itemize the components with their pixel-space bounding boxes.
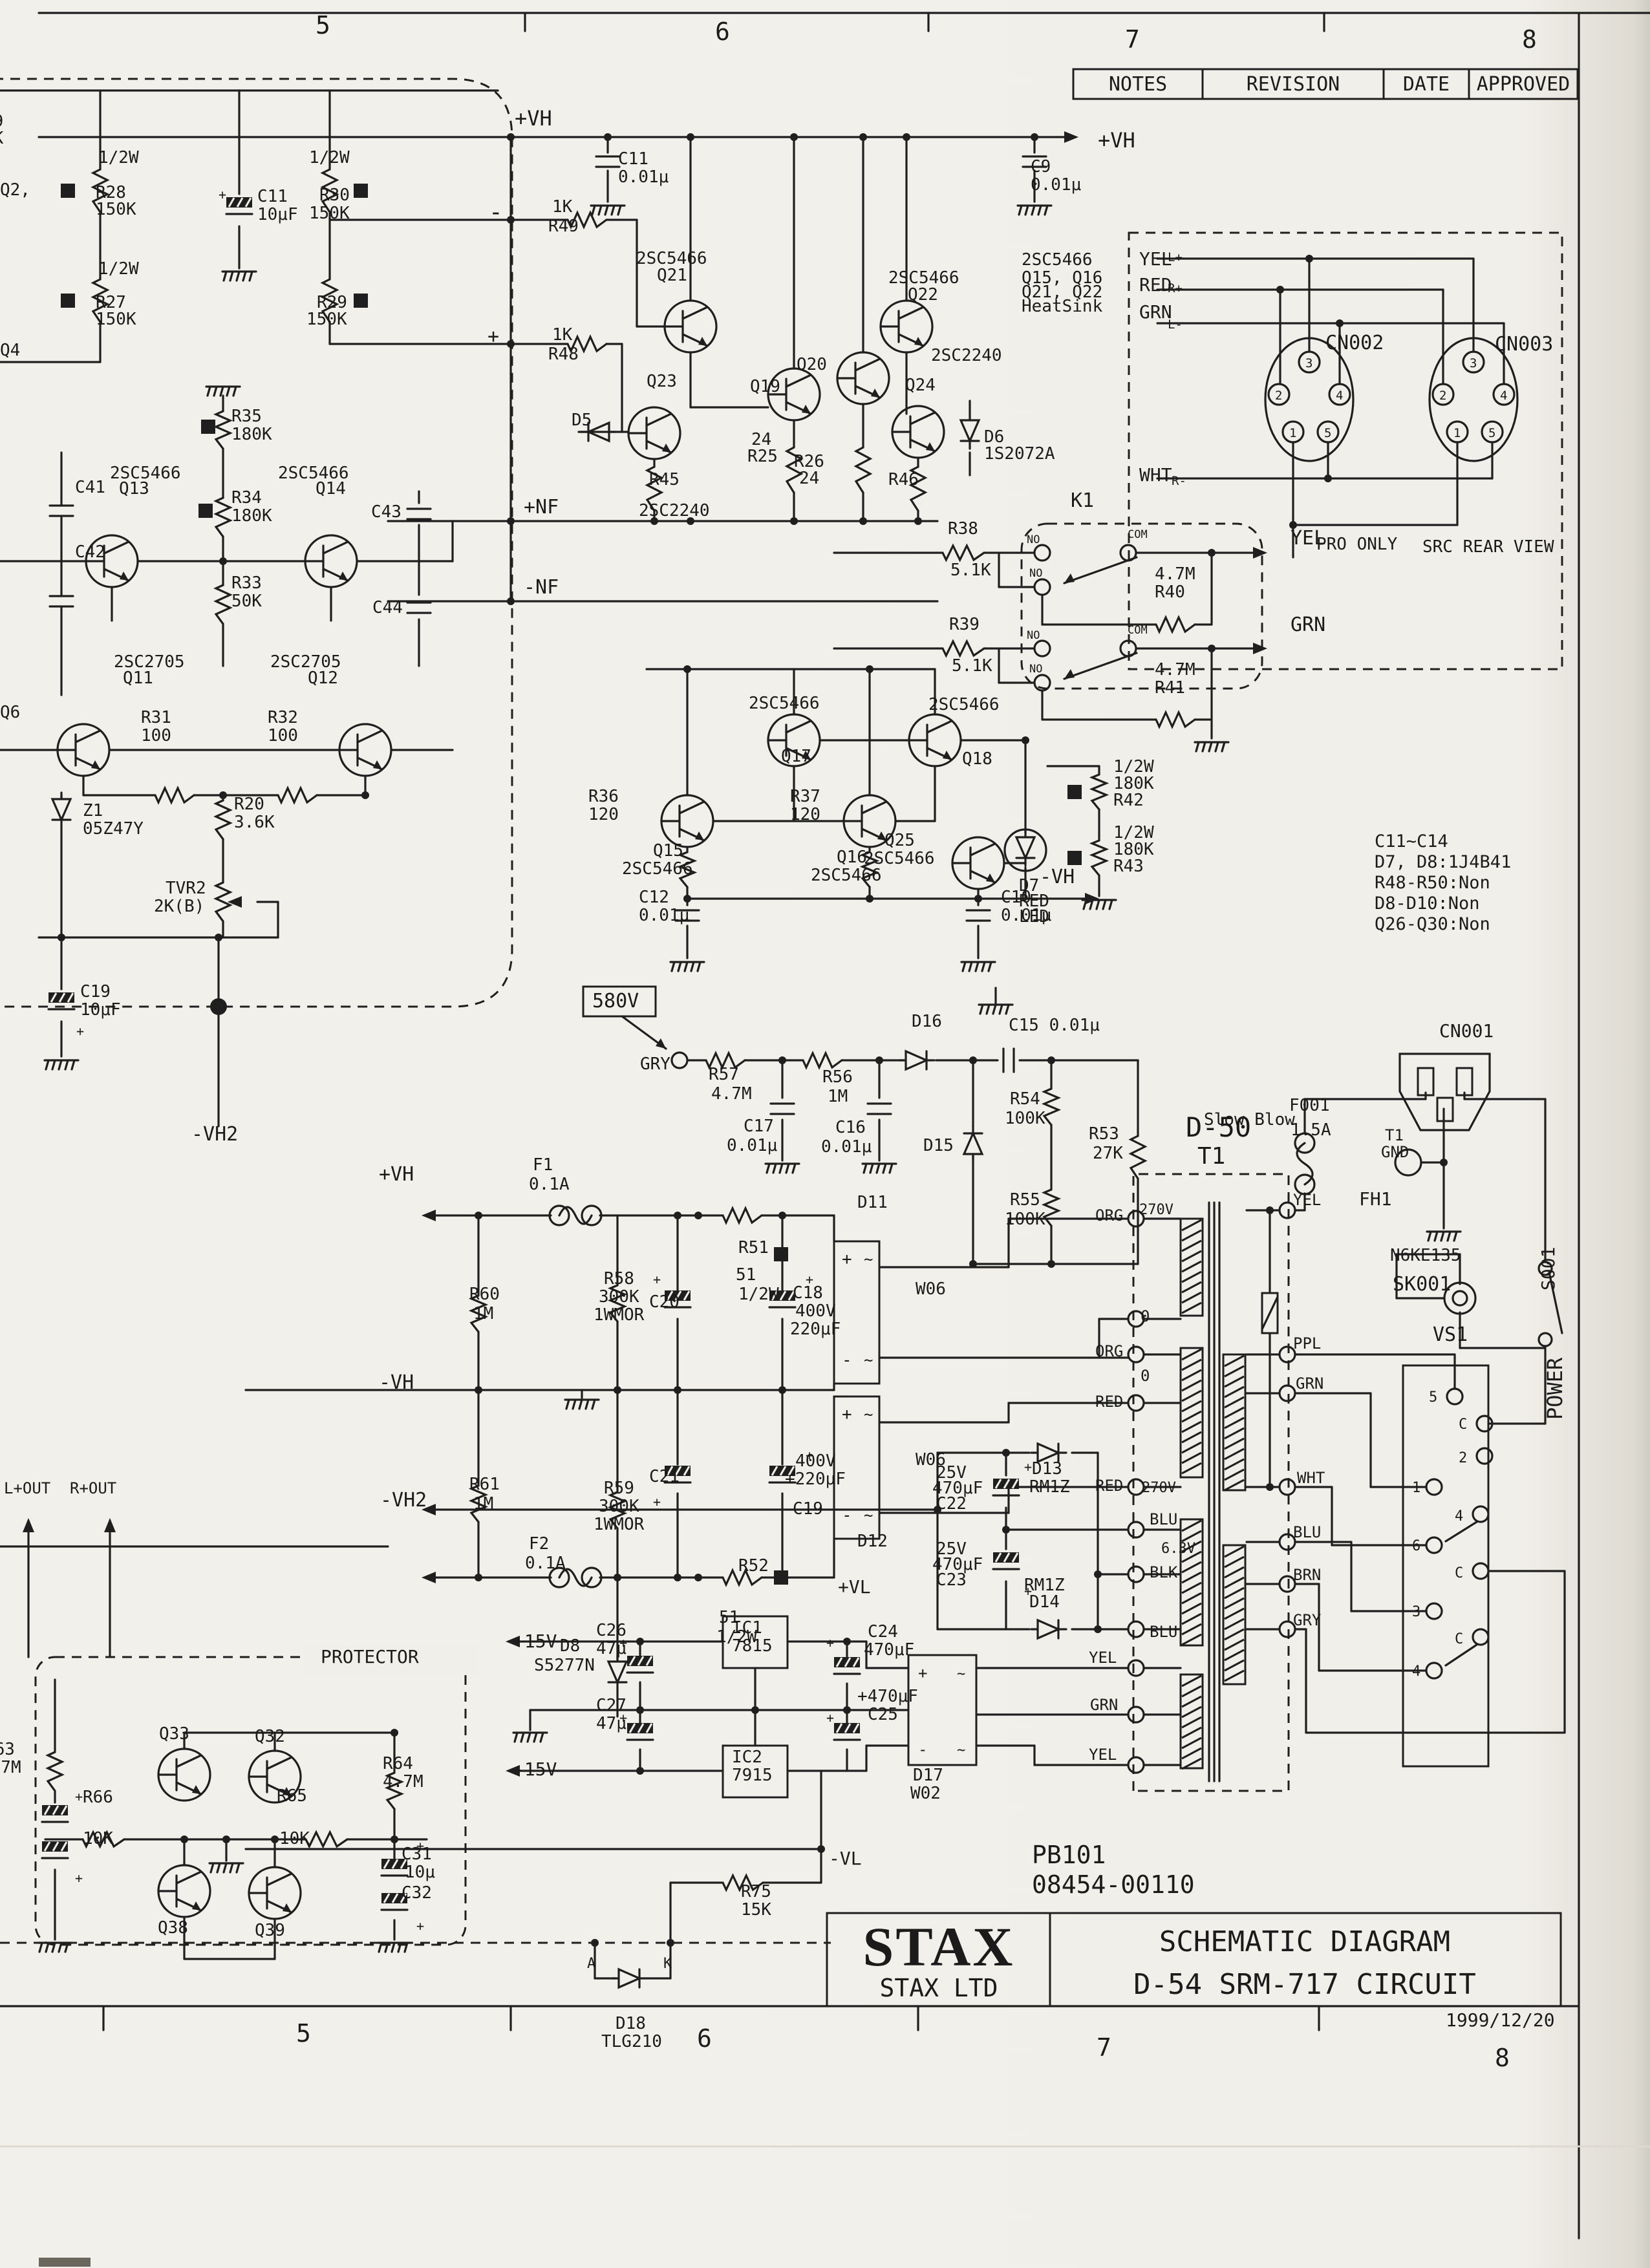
schematic-label: 7 bbox=[1097, 2033, 1111, 2062]
schematic-label: 100 bbox=[268, 726, 298, 745]
schematic-label: ORG bbox=[1095, 1206, 1123, 1225]
schematic-label: 2 bbox=[1439, 389, 1446, 403]
schematic-label: D8 bbox=[560, 1636, 580, 1656]
schematic-label: Q18 bbox=[962, 749, 992, 769]
schematic-label: D16 bbox=[912, 1012, 942, 1031]
schematic-label: NO bbox=[1027, 533, 1040, 546]
schematic-label: +15V bbox=[513, 1631, 557, 1652]
schematic-label: R66 bbox=[83, 1788, 113, 1807]
schematic-label: -NF bbox=[524, 576, 559, 599]
schematic-label: IC1 bbox=[732, 1618, 762, 1638]
schematic-label: 0.1A bbox=[529, 1175, 570, 1194]
schematic-label: 580V bbox=[592, 990, 639, 1012]
schematic-label: Q38 bbox=[158, 1918, 188, 1938]
schematic-label: Q25 bbox=[884, 831, 915, 850]
schematic-label: C41 bbox=[75, 478, 105, 497]
schematic-label: Q21 bbox=[657, 266, 687, 285]
schematic-label: + bbox=[1024, 1583, 1032, 1599]
schematic-label: 2SC5466 bbox=[811, 866, 882, 885]
schematic-label: C44 bbox=[372, 598, 403, 617]
schematic-label: 2SC5466 bbox=[864, 849, 935, 868]
schematic-label: CN002 bbox=[1325, 332, 1384, 354]
schematic-label: F1 bbox=[533, 1155, 553, 1175]
schematic-label: CN001 bbox=[1439, 1020, 1494, 1042]
schematic-label: + bbox=[826, 1710, 834, 1726]
schematic-label: 1WMOR bbox=[594, 1305, 645, 1325]
schematic-label: 4.7M bbox=[383, 1772, 423, 1792]
schematic-label: 0.01μ bbox=[727, 1136, 777, 1155]
schematic-label: 4 bbox=[1455, 1508, 1463, 1524]
schematic-label: 100K bbox=[1005, 1109, 1045, 1128]
schematic-label: C bbox=[1459, 1417, 1467, 1433]
schematic-label: C19 bbox=[80, 982, 111, 1001]
schematic-label: R32 bbox=[268, 708, 298, 727]
schematic-label: PRO ONLY bbox=[1316, 535, 1398, 554]
schematic-label: Q39 bbox=[255, 1921, 285, 1940]
schematic-label: 3 bbox=[1305, 356, 1312, 370]
schematic-label: R35 bbox=[231, 407, 262, 426]
schematic-label: R60 bbox=[469, 1285, 500, 1304]
schematic-label: 1M bbox=[828, 1087, 848, 1106]
schematic-label: 15K bbox=[741, 1900, 771, 1920]
schematic-label: YEL bbox=[1293, 1191, 1321, 1209]
schematic-label: R40 bbox=[1155, 583, 1185, 602]
schematic-label: A bbox=[587, 1956, 595, 1972]
schematic-label: + bbox=[487, 325, 499, 348]
schematic-label: -VH2 bbox=[380, 1489, 427, 1512]
schematic-label: C bbox=[1455, 1565, 1463, 1581]
schematic-label: 0 bbox=[1141, 1367, 1150, 1385]
schematic-label: 270V bbox=[1142, 1480, 1176, 1496]
schematic-label: 1 bbox=[1412, 1480, 1420, 1496]
schematic-label: R75 bbox=[741, 1882, 771, 1901]
parts-note: Q26-Q30:Non bbox=[1375, 914, 1490, 934]
schematic-label: R65 bbox=[277, 1786, 307, 1806]
schematic-label: -VH2 bbox=[191, 1123, 238, 1146]
schematic-label: ~ bbox=[957, 1666, 965, 1682]
schematic-label: R38 bbox=[948, 519, 978, 539]
schematic-label: HeatSink bbox=[1022, 297, 1103, 316]
schematic-label: K bbox=[663, 1956, 672, 1972]
pcb-id: PB101 bbox=[1032, 1841, 1106, 1869]
schematic-label: + bbox=[75, 1870, 83, 1886]
schematic-label: 51 bbox=[736, 1265, 756, 1285]
schematic-label: - bbox=[918, 1740, 927, 1759]
schematic-label: K1 bbox=[1071, 489, 1094, 512]
schematic-label: C24 bbox=[868, 1622, 898, 1642]
schematic-label: S5277N bbox=[534, 1656, 595, 1675]
schematic-label: +VL bbox=[838, 1576, 871, 1598]
schematic-label: GRN bbox=[1139, 301, 1172, 323]
schematic-label: 1M bbox=[473, 1494, 493, 1514]
schematic-label: Q16 bbox=[837, 848, 867, 867]
schematic-label: BLU bbox=[1150, 1510, 1177, 1528]
schematic-label: 27K bbox=[1093, 1144, 1123, 1163]
schematic-label: 300K bbox=[599, 1287, 639, 1307]
parts-note: D7, D8:1J4B41 bbox=[1375, 852, 1511, 872]
schematic-label: 2K(B) bbox=[154, 897, 204, 916]
schematic-label: 0.01μ bbox=[1001, 906, 1051, 925]
schematic-label: ~ bbox=[864, 1406, 873, 1424]
schematic-label: R30 bbox=[319, 186, 350, 205]
schematic-label: 2SC5466 bbox=[1022, 250, 1093, 270]
schematic-label: R48 bbox=[548, 345, 579, 364]
schematic-label: 5 bbox=[1324, 426, 1331, 440]
schematic-label: R57 bbox=[709, 1065, 739, 1084]
schematic-label: WHT bbox=[1139, 464, 1172, 486]
schematic-label: 400V bbox=[795, 1301, 836, 1321]
schematic-label: 180K bbox=[231, 425, 272, 444]
schematic-label: PPL bbox=[1293, 1334, 1321, 1353]
wires bbox=[0, 91, 1565, 1978]
schematic-label: 6 bbox=[1412, 1538, 1420, 1554]
schematic-label: + bbox=[619, 1635, 627, 1651]
schematic-label: C11 bbox=[257, 187, 288, 206]
schematic-label: 150K bbox=[309, 204, 350, 223]
schematic-label: 400V bbox=[795, 1451, 836, 1471]
schematic-label: +NF bbox=[524, 496, 559, 519]
schematic-label: + bbox=[842, 1250, 852, 1269]
schematic-label: 1 bbox=[1289, 426, 1296, 440]
schematic-label: 1K bbox=[552, 197, 573, 217]
schematic-label: 2SC5466 bbox=[928, 695, 1000, 714]
schematic-label: D17 bbox=[913, 1766, 943, 1785]
schematic-label: +VH bbox=[1098, 128, 1135, 153]
schematic-label: R43 bbox=[1113, 857, 1144, 876]
schematic-label: 4.7M bbox=[0, 1758, 21, 1777]
schematic-label: R42 bbox=[1113, 791, 1144, 810]
schematic-label: T1 bbox=[1385, 1126, 1404, 1144]
schematic-label: + bbox=[806, 1272, 813, 1287]
schematic-label: 4.7M bbox=[1155, 660, 1195, 679]
schematic-label: D12 bbox=[857, 1532, 888, 1551]
schematic-label: CN003 bbox=[1495, 333, 1553, 356]
schematic-label: 7 bbox=[1125, 25, 1140, 54]
schematic-label: 0 bbox=[1141, 1307, 1150, 1325]
schematic-label: GRN bbox=[1090, 1696, 1118, 1714]
schematic-label: D13 bbox=[1032, 1459, 1062, 1479]
schematic-label: Q14 bbox=[316, 479, 346, 498]
schematic-label: 5 bbox=[316, 11, 330, 39]
schematic-label: Q6 bbox=[0, 703, 20, 722]
schematic-label: R45 bbox=[649, 470, 680, 489]
schematic-label: W06 bbox=[916, 1279, 946, 1299]
schematic-label: 100 bbox=[141, 726, 171, 745]
schematic-label: 300K bbox=[599, 1497, 639, 1516]
schematic-label: Q23 bbox=[647, 372, 677, 391]
schematic-label: YEL bbox=[1139, 248, 1172, 270]
schematic-label: 180K bbox=[231, 506, 272, 526]
schematic-label: 2 bbox=[1275, 389, 1282, 403]
schematic-label: NO bbox=[1029, 567, 1042, 580]
schematic-label: + bbox=[826, 1635, 834, 1651]
schematic-label: R58 bbox=[604, 1269, 634, 1289]
schematic-label: C9 bbox=[1031, 157, 1051, 177]
schematic-label: + bbox=[219, 187, 226, 202]
schematic-label: BLU bbox=[1150, 1623, 1177, 1641]
component-labels: 567856781999/12/20R91KQ2,Q4Q61/2WR28150K… bbox=[0, 11, 1567, 2072]
schematic-label: 5.1K bbox=[952, 656, 992, 676]
rev-col-approved: APPROVED bbox=[1477, 73, 1570, 96]
schematic-label: + bbox=[653, 1494, 661, 1510]
schematic-label: R36 bbox=[588, 787, 619, 806]
schematic-label: C42 bbox=[75, 542, 105, 562]
schematic-label: R25 bbox=[747, 447, 778, 466]
schematic-label: S001 bbox=[1537, 1247, 1559, 1290]
schematic-label: VS1 bbox=[1433, 1323, 1468, 1346]
schematic-label: 1/2W bbox=[309, 148, 350, 167]
schematic-label: 2SC5466 bbox=[749, 694, 820, 713]
schematic-label: SRC REAR VIEW bbox=[1422, 537, 1554, 557]
schematic-label: 50K bbox=[231, 592, 262, 611]
schematic-label: R37 bbox=[790, 787, 820, 806]
schematic-label: + bbox=[1024, 1459, 1032, 1475]
schematic-label: ~ bbox=[864, 1506, 873, 1524]
schematic-label: IC2 bbox=[732, 1748, 762, 1767]
schematic-label: + bbox=[75, 1789, 83, 1804]
schematic-label: 10K bbox=[279, 1829, 310, 1848]
schematic-label: 120 bbox=[588, 805, 619, 824]
schematic-label: + bbox=[76, 1023, 84, 1039]
schematic-label: Q11 bbox=[123, 669, 153, 688]
schematic-label: F001 bbox=[1289, 1096, 1330, 1115]
schematic-label: BLK bbox=[1150, 1563, 1178, 1581]
schematic-label: 0.01μ bbox=[1031, 175, 1081, 195]
schematic-label: Q13 bbox=[119, 479, 149, 498]
schematic-label: 10K bbox=[83, 1829, 113, 1848]
schematic-label: R53 bbox=[1089, 1124, 1119, 1144]
schematic-label: GRN bbox=[1296, 1375, 1323, 1393]
schematic-label: T1 bbox=[1197, 1143, 1225, 1170]
schematic-label: R31 bbox=[141, 708, 171, 727]
schematic-label: C10 bbox=[1001, 888, 1031, 907]
schematic-label: Q32 bbox=[255, 1727, 285, 1746]
stax-logo: STAX bbox=[862, 1916, 1014, 1978]
schematic-label: + bbox=[653, 1272, 661, 1287]
schematic-label: 470μF bbox=[864, 1640, 914, 1660]
schematic-label: R54 bbox=[1010, 1089, 1040, 1109]
schematic-label: R64 bbox=[383, 1754, 413, 1773]
schematic-label: 150K bbox=[306, 310, 347, 329]
schematic-label: Q33 bbox=[159, 1724, 189, 1744]
schematic-label: Q15 bbox=[653, 841, 683, 861]
schematic-label: 4 bbox=[1336, 389, 1343, 403]
schematic-label: RM1Z bbox=[1029, 1477, 1070, 1497]
schematic-label: Q2, bbox=[0, 180, 30, 200]
schematic-label: R41 bbox=[1155, 678, 1185, 698]
schematic-label: + bbox=[619, 1710, 627, 1726]
schematic-label: -VH bbox=[1040, 866, 1075, 888]
schematic-label: 4.7M bbox=[1155, 564, 1195, 584]
schematic-label: C11 bbox=[618, 149, 648, 169]
schematic-label: C12 bbox=[639, 888, 669, 907]
schematic-label: -VL bbox=[829, 1848, 862, 1869]
schematic-label: 6.3V bbox=[1161, 1541, 1195, 1557]
schematic-label: Q20 bbox=[797, 355, 827, 374]
schematic-label: 3 bbox=[1470, 356, 1477, 370]
schematic-label: 10μ bbox=[405, 1863, 435, 1882]
schematic-label: 1S2072A bbox=[984, 444, 1055, 464]
schematic-label: 4.7M bbox=[711, 1084, 752, 1104]
schematic-label: 2SC2240 bbox=[639, 501, 710, 520]
schematic-label: - bbox=[489, 199, 503, 226]
parts-note: C11~C14 bbox=[1375, 831, 1448, 851]
schematic-label: 10μF bbox=[257, 205, 298, 224]
schematic-label: R55 bbox=[1010, 1190, 1040, 1210]
schematic-label: 1999/12/20 bbox=[1446, 2009, 1555, 2031]
schematic-label: 0.01μ bbox=[618, 167, 669, 187]
schematic-label: 1/2W bbox=[738, 1285, 779, 1304]
schematic-drawing: 567856781999/12/20R91KQ2,Q4Q61/2WR28150K… bbox=[0, 0, 1650, 2268]
schematic-label: 5 bbox=[296, 2019, 311, 2048]
schematic-label: 2SC5466 bbox=[622, 859, 693, 879]
schematic-label: + bbox=[806, 1448, 813, 1463]
schematic-label: SK001 bbox=[1393, 1273, 1451, 1296]
schematic-label: 120 bbox=[790, 805, 820, 824]
schematic-label: Q19 bbox=[750, 377, 780, 396]
schematic-label: C16 bbox=[835, 1118, 866, 1137]
schematic-label: 6 bbox=[697, 2024, 712, 2053]
schematic-label: GRY bbox=[1293, 1611, 1322, 1629]
rev-col-revision: REVISION bbox=[1247, 73, 1340, 96]
schematic-label: R49 bbox=[548, 217, 579, 236]
schematic-label: 10μF bbox=[80, 1000, 121, 1020]
schematic-label: ORG bbox=[1095, 1342, 1123, 1360]
schematic-label: 5.1K bbox=[950, 561, 991, 580]
schematic-label: + bbox=[416, 1918, 424, 1934]
schematic-label: R- bbox=[1172, 474, 1186, 488]
schematic-label: +VH bbox=[515, 106, 552, 131]
schematic-label: R63 bbox=[0, 1740, 15, 1759]
schematic-label: + bbox=[842, 1405, 852, 1424]
schematic-label: -15V bbox=[513, 1759, 557, 1780]
schematic-label: C32 bbox=[402, 1883, 432, 1903]
schematic-label: 100K bbox=[1005, 1210, 1045, 1229]
schematic-label: FH1 bbox=[1359, 1188, 1392, 1210]
schematic-label: 1K bbox=[0, 129, 4, 148]
schematic-label: D5 bbox=[572, 411, 592, 430]
schematic-label: D18 bbox=[616, 2014, 646, 2033]
schematic-label: Q12 bbox=[308, 669, 338, 688]
schematic-label: POWER bbox=[1543, 1357, 1567, 1420]
schematic-label: NO bbox=[1029, 663, 1042, 676]
pcb-number: PB101 08454-00110 bbox=[1032, 1841, 1195, 1899]
schematic-label: GND bbox=[1381, 1143, 1409, 1161]
schematic-label: Slow Blow bbox=[1204, 1110, 1295, 1129]
schematic-label: 4 bbox=[1412, 1664, 1420, 1680]
schematic-label: R59 bbox=[604, 1479, 634, 1498]
schematic-label: 2SC2240 bbox=[931, 346, 1002, 365]
schematic-label: 7815 bbox=[732, 1636, 773, 1656]
schematic-label: TLG210 bbox=[601, 2032, 662, 2051]
parts-note: R48-R50:Non bbox=[1375, 873, 1490, 893]
schematic-label: N6KE135 bbox=[1390, 1246, 1461, 1265]
schematic-label: 0.1A bbox=[525, 1554, 566, 1573]
revision-table: NOTES REVISION DATE APPROVED bbox=[1073, 69, 1578, 99]
schematic-label: 0.01μ bbox=[639, 906, 689, 925]
schematic-label: BLU bbox=[1293, 1523, 1321, 1541]
schematic-label: COM bbox=[1128, 528, 1148, 541]
rev-col-notes: NOTES bbox=[1109, 73, 1167, 96]
schematic-label: R56 bbox=[822, 1067, 853, 1087]
title-block: STAX STAX LTD SCHEMATIC DIAGRAM D-54 SRM… bbox=[827, 1913, 1561, 2006]
schematic-label: D14 bbox=[1029, 1592, 1060, 1612]
schematic-label: TVR2 bbox=[166, 879, 206, 898]
schematic-label: R+ bbox=[1168, 281, 1183, 295]
schematic-label: C bbox=[1455, 1631, 1463, 1647]
schematic-label: R20 bbox=[234, 795, 264, 814]
schematic-label: + bbox=[416, 1838, 424, 1854]
schematic-label: YEL bbox=[1089, 1746, 1117, 1764]
schematic-label: 6 bbox=[715, 17, 730, 46]
schematic-label: C21 bbox=[649, 1467, 680, 1486]
schematic-label: 7915 bbox=[732, 1766, 773, 1785]
schematic-label: R51 bbox=[738, 1238, 769, 1257]
schematic-label: 1 bbox=[1453, 426, 1461, 440]
schematic-label: 2 bbox=[1459, 1450, 1467, 1466]
schematic-label: C22 bbox=[936, 1494, 967, 1514]
schematic-label: 24 bbox=[799, 469, 819, 488]
schematic-label: Q4 bbox=[0, 341, 20, 360]
schematic-label: L+OUT bbox=[4, 1479, 50, 1497]
schematic-label: 3.6K bbox=[234, 813, 275, 832]
schematic-label: 3 bbox=[1412, 1604, 1420, 1620]
schematic-label: R+OUT bbox=[70, 1479, 116, 1497]
schematic-label: WHT bbox=[1297, 1469, 1325, 1487]
schematic-label: C19 bbox=[793, 1499, 823, 1519]
schematic-label: Q24 bbox=[905, 376, 936, 395]
schematic-label: - bbox=[842, 1351, 852, 1370]
schematic-label: 0.01μ bbox=[821, 1137, 872, 1157]
schematic-label: 4 bbox=[1500, 389, 1507, 403]
schematic-label: L- bbox=[1168, 317, 1183, 332]
schematic-label: -VH bbox=[379, 1371, 414, 1394]
schematic-label: C43 bbox=[371, 502, 402, 522]
schematic-sheet: 567856781999/12/20R91KQ2,Q4Q61/2WR28150K… bbox=[0, 0, 1650, 2268]
schematic-label: C20 bbox=[649, 1292, 680, 1312]
schematic-label: D11 bbox=[857, 1193, 888, 1212]
schematic-label: 8 bbox=[1522, 25, 1537, 54]
schematic-label: ~ bbox=[864, 1351, 873, 1369]
schematic-label: 1M bbox=[473, 1304, 493, 1323]
schematic-label: C25 bbox=[868, 1705, 898, 1724]
schematic-label: RED bbox=[1095, 1393, 1123, 1411]
company-name: STAX LTD bbox=[879, 1974, 998, 2002]
schematic-label: Q22 bbox=[908, 285, 938, 305]
schematic-label: R39 bbox=[949, 615, 980, 634]
schematic-label: R61 bbox=[469, 1475, 500, 1494]
schematic-label: C17 bbox=[744, 1117, 774, 1136]
schematic-label: +220μF bbox=[785, 1470, 846, 1489]
schematic-label: 1K bbox=[552, 325, 573, 345]
schematic-label: RED bbox=[1095, 1477, 1123, 1495]
pcb-code: 08454-00110 bbox=[1032, 1870, 1195, 1899]
schematic-label: YEL bbox=[1089, 1649, 1117, 1667]
schematic-label: R34 bbox=[231, 488, 262, 508]
schematic-label: 5 bbox=[1429, 1389, 1437, 1406]
schematic-label: F2 bbox=[529, 1534, 549, 1554]
schematic-label: C15 0.01μ bbox=[1009, 1016, 1100, 1035]
schematic-label: GRN bbox=[1291, 614, 1325, 636]
schematic-label: 1/2W bbox=[98, 259, 139, 279]
schematic-label: 1WMOR bbox=[594, 1515, 645, 1534]
schematic-label: 270V bbox=[1139, 1202, 1173, 1218]
schematic-label: 8 bbox=[1495, 2044, 1510, 2072]
schematic-label: C23 bbox=[936, 1570, 967, 1590]
schematic-label: PROTECTOR bbox=[321, 1646, 419, 1667]
schematic-label: - bbox=[842, 1506, 852, 1525]
parts-note: D8-D10:Non bbox=[1375, 893, 1480, 914]
